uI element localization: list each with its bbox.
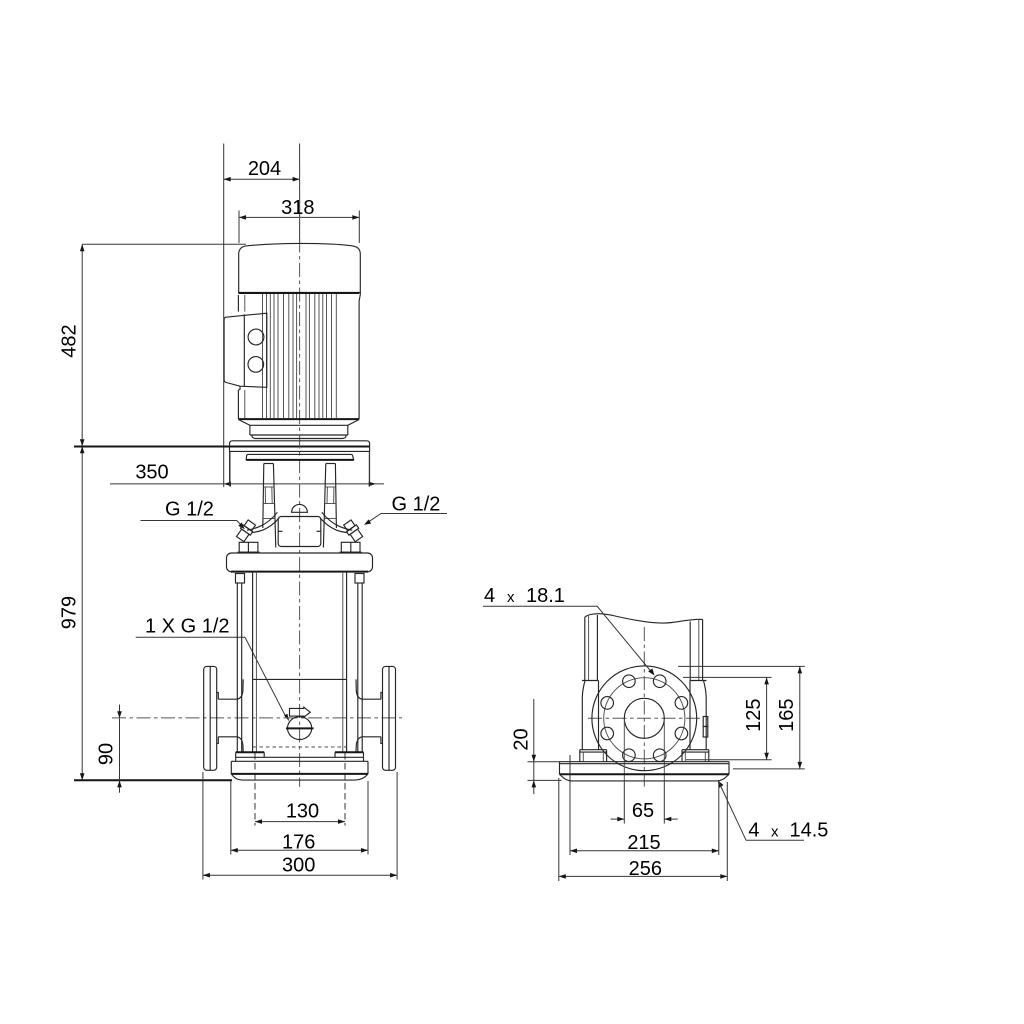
svg-text:G 1/2: G 1/2 (165, 499, 214, 521)
svg-text:300: 300 (282, 855, 315, 877)
svg-text:1 X G 1/2: 1 X G 1/2 (145, 616, 230, 638)
svg-text:125: 125 (743, 699, 765, 732)
svg-text:350: 350 (135, 462, 168, 484)
svg-text:318: 318 (281, 197, 314, 219)
svg-text:204: 204 (248, 158, 281, 180)
svg-text:979: 979 (59, 596, 81, 629)
svg-text:482: 482 (59, 324, 81, 357)
svg-text:G 1/2: G 1/2 (392, 494, 441, 516)
svg-text:65: 65 (632, 800, 654, 822)
svg-text:165: 165 (776, 699, 798, 732)
svg-text:130: 130 (286, 801, 319, 823)
svg-text:90: 90 (96, 743, 118, 765)
svg-text:20: 20 (510, 728, 532, 750)
